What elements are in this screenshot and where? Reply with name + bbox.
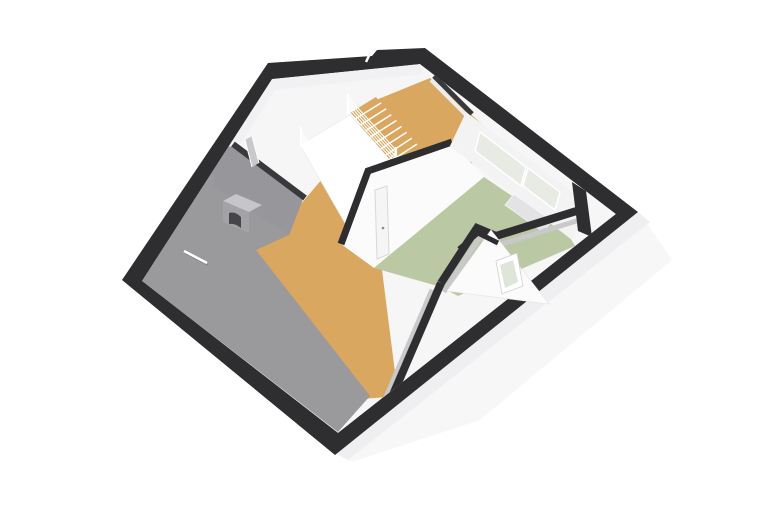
bedroom-door [375,186,389,259]
floorplan-3d-viewport[interactable] [0,0,762,508]
floorplan-3d-render [0,0,762,508]
door-handle [382,227,385,230]
